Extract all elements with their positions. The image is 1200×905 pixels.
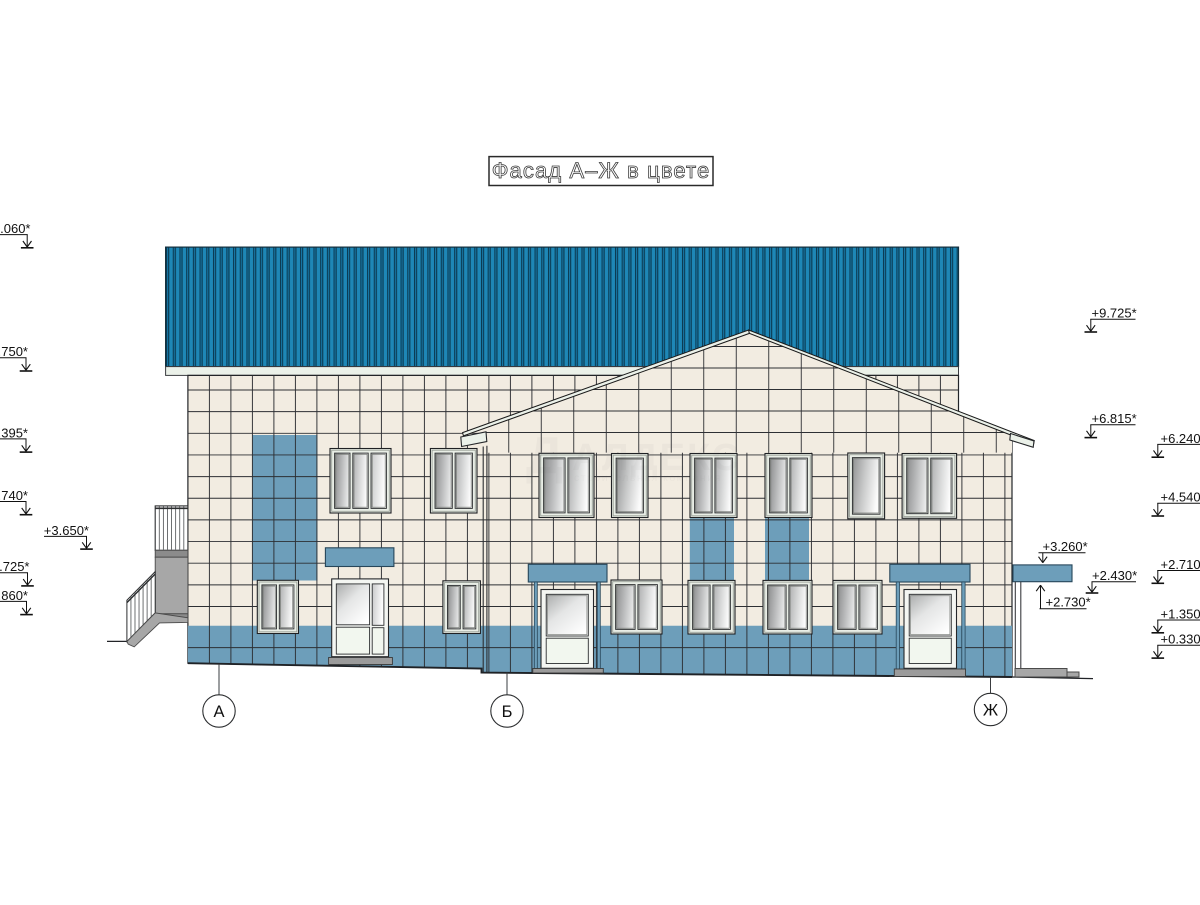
svg-text:+0.330*: +0.330*	[1161, 632, 1200, 647]
svg-text:.060*: .060*	[0, 221, 30, 236]
svg-text:Д: Д	[526, 427, 563, 485]
svg-text:+2.430*: +2.430*	[1092, 568, 1137, 583]
svg-text:+6.815*: +6.815*	[1092, 411, 1137, 426]
svg-text:строительная компания: строительная компания	[574, 472, 722, 484]
svg-text:.725*: .725*	[0, 559, 30, 574]
svg-text:Ж: Ж	[983, 701, 999, 719]
svg-text:+3.260*: +3.260*	[1043, 539, 1088, 554]
svg-text:Фасад А–Ж в цвете: Фасад А–Ж в цвете	[492, 158, 711, 183]
svg-text:+4.540*: +4.540*	[1161, 490, 1200, 505]
svg-text:+9.725*: +9.725*	[1092, 306, 1137, 321]
svg-text:.395*: .395*	[0, 425, 28, 440]
svg-text:+3.650*: +3.650*	[44, 523, 89, 538]
svg-text:А: А	[213, 703, 224, 721]
svg-text:Б: Б	[502, 703, 513, 721]
svg-text:+6.240*: +6.240*	[1161, 431, 1200, 446]
svg-text:+1.350*: +1.350*	[1161, 606, 1200, 621]
svg-text:+2.710*: +2.710*	[1161, 557, 1200, 572]
svg-text:.740*: .740*	[0, 488, 28, 503]
svg-text:.750*: .750*	[0, 344, 28, 359]
svg-text:.860*: .860*	[0, 588, 28, 603]
svg-text:+2.730*: +2.730*	[1046, 595, 1091, 610]
